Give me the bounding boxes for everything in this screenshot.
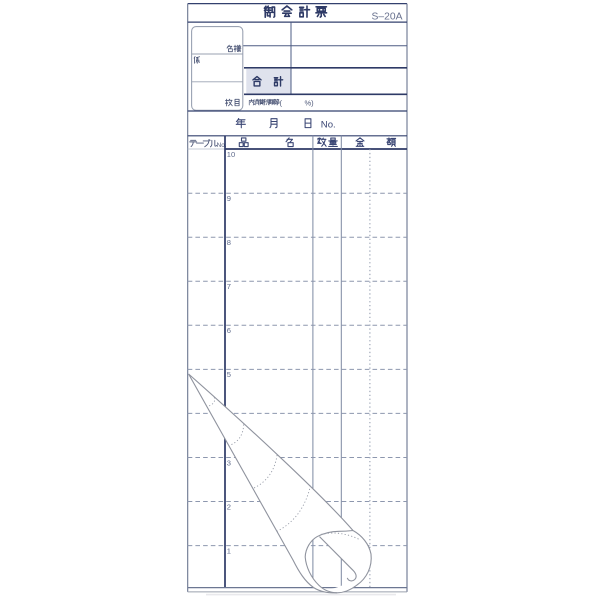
svg-text:8: 8 (227, 238, 231, 247)
svg-text:3: 3 (227, 458, 231, 467)
svg-text:%): %) (305, 99, 315, 108)
svg-text:5: 5 (227, 370, 231, 379)
svg-text:No.: No. (321, 120, 336, 131)
svg-text:6: 6 (227, 326, 231, 335)
svg-text:1: 1 (227, 547, 231, 556)
svg-text:S–20A: S–20A (372, 12, 403, 23)
svg-text:2: 2 (227, 502, 231, 511)
svg-text:9: 9 (227, 194, 231, 203)
svg-text:10: 10 (227, 150, 235, 159)
svg-text:7: 7 (227, 282, 231, 291)
